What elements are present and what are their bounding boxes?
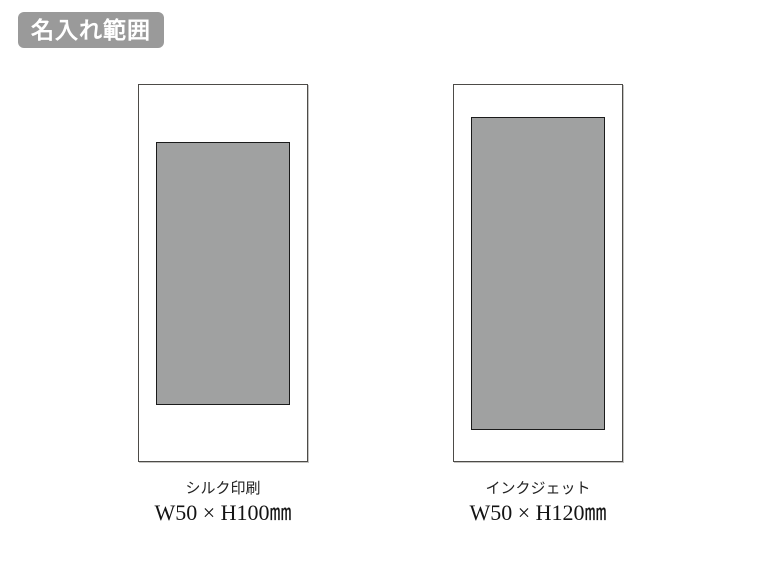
print-method-label-inkjet: インクジェット xyxy=(438,478,638,499)
caption-silk: シルク印刷 W50 × H100㎜ xyxy=(123,478,323,526)
product-outline-silk xyxy=(138,84,308,462)
print-area-badge: 名入れ範囲 xyxy=(18,12,164,48)
print-size-label-inkjet: W50 × H120㎜ xyxy=(438,499,638,526)
print-area-diagram: 名入れ範囲 シルク印刷 W50 × H100㎜ インクジェット W50 × H1… xyxy=(0,0,760,570)
print-area-rect-inkjet xyxy=(471,117,605,430)
print-size-label-silk: W50 × H100㎜ xyxy=(123,499,323,526)
print-area-rect-silk xyxy=(156,142,290,405)
print-method-label-silk: シルク印刷 xyxy=(123,478,323,499)
caption-inkjet: インクジェット W50 × H120㎜ xyxy=(438,478,638,526)
product-outline-inkjet xyxy=(453,84,623,462)
